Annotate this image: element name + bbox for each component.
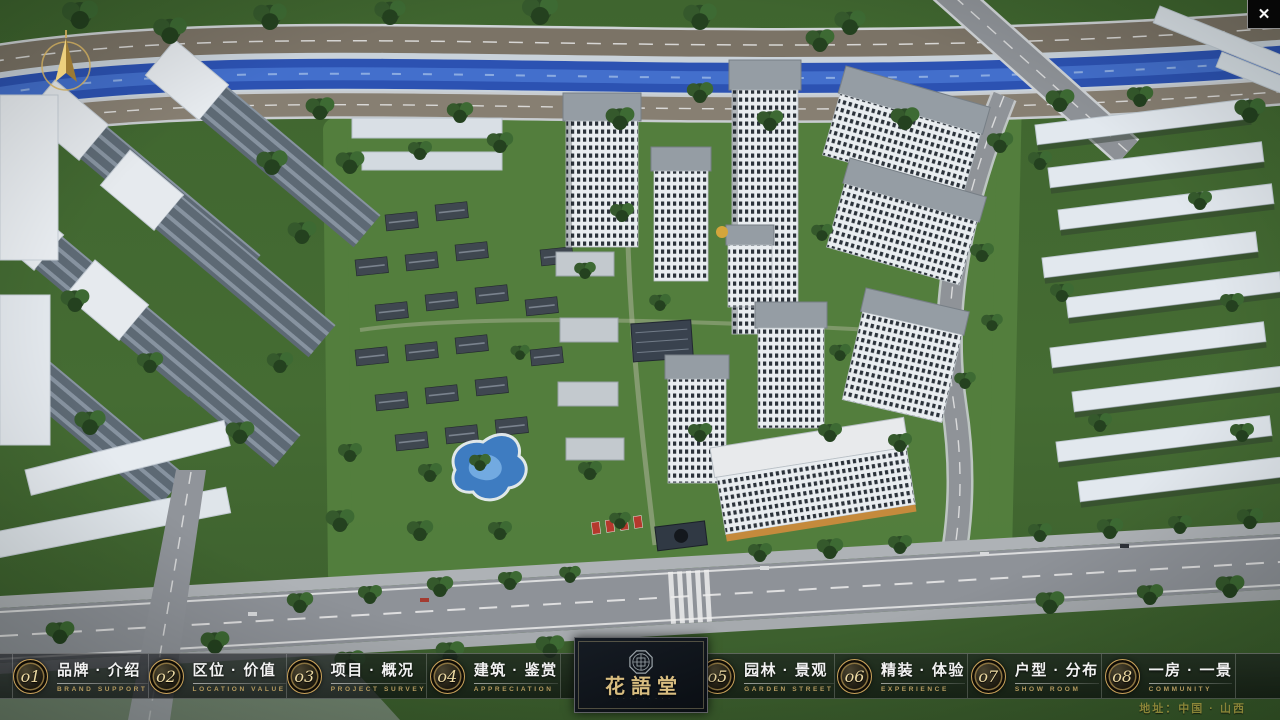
nav-sublabel-4: APPRECIATION	[474, 686, 558, 693]
compass-icon[interactable]	[34, 26, 98, 98]
nav-item-experience[interactable]: o6 精装 · 体验 EXPERIENCE	[835, 654, 969, 698]
app-window: ✕ o1 品牌 · 介绍 BRAND SUPPORT o2 区位 · 价值 LO…	[0, 0, 1280, 720]
nav-badge-4: o4	[430, 659, 465, 694]
close-button[interactable]: ✕	[1247, 0, 1280, 29]
nav-label-6: 精装 · 体验	[881, 659, 965, 680]
nav-divider-3	[331, 683, 427, 684]
nav-item-community-view[interactable]: o8 一房 · 一景 COMMUNITY	[1102, 654, 1236, 698]
nav-divider-7	[1015, 683, 1099, 684]
nav-label-3: 项目 · 概况	[331, 659, 427, 680]
nav-number-2: o2	[156, 667, 176, 686]
nav-number-1: o1	[21, 667, 41, 686]
seal-icon	[628, 649, 654, 675]
nav-number-3: o3	[294, 667, 314, 686]
nav-number-4: o4	[437, 667, 457, 686]
nav-sublabel-1: BRAND SUPPORT	[57, 686, 148, 693]
nav-label-1: 品牌 · 介绍	[57, 659, 148, 680]
nav-badge-6: o6	[837, 659, 872, 694]
close-icon: ✕	[1258, 5, 1271, 23]
brand-logo-frame: 花語堂 · · · · · · · · · ·	[578, 641, 704, 709]
nav-label-2: 区位 · 价值	[193, 659, 286, 680]
nav-item-garden-landscape[interactable]: o5 园林 · 景观 GARDEN STREET	[700, 654, 834, 698]
nav-sublabel-3: PROJECT SURVEY	[331, 686, 427, 693]
nav-badge-1: o1	[13, 659, 48, 694]
nav-label-4: 建筑 · 鉴赏	[474, 659, 558, 680]
nav-badge-3: o3	[287, 659, 322, 694]
nav-divider-2	[193, 683, 286, 684]
nav-sublabel-2: LOCATION VALUE	[193, 686, 286, 693]
nav-bar-spacer-left	[0, 654, 13, 698]
nav-number-6: o6	[845, 667, 865, 686]
nav-divider-5	[744, 683, 833, 684]
nav-sublabel-8: COMMUNITY	[1149, 686, 1233, 693]
nav-sublabel-7: SHOW ROOM	[1015, 686, 1099, 693]
nav-sublabel-6: EXPERIENCE	[881, 686, 965, 693]
nav-divider-6	[881, 683, 965, 684]
nav-label-8: 一房 · 一景	[1149, 659, 1233, 680]
nav-item-location-value[interactable]: o2 区位 · 价值 LOCATION VALUE	[149, 654, 287, 698]
nav-item-project-survey[interactable]: o3 项目 · 概况 PROJECT SURVEY	[287, 654, 428, 698]
vignette	[0, 0, 1280, 720]
nav-number-8: o8	[1112, 667, 1132, 686]
nav-divider-1	[57, 683, 148, 684]
nav-item-brand-intro[interactable]: o1 品牌 · 介绍 BRAND SUPPORT	[13, 654, 149, 698]
nav-item-architecture[interactable]: o4 建筑 · 鉴赏 APPRECIATION	[427, 654, 561, 698]
nav-badge-2: o2	[149, 659, 184, 694]
nav-divider-4	[474, 683, 558, 684]
brand-name: 花語堂	[599, 676, 683, 696]
nav-divider-8	[1149, 683, 1233, 684]
nav-badge-7: o7	[971, 659, 1006, 694]
nav-sublabel-5: GARDEN STREET	[744, 686, 833, 693]
nav-badge-8: o8	[1105, 659, 1140, 694]
aerial-map-viewport[interactable]	[0, 0, 1280, 720]
nav-number-7: o7	[978, 667, 998, 686]
nav-label-7: 户型 · 分布	[1015, 659, 1099, 680]
brand-subtitle: · · · · · · · · · ·	[610, 697, 671, 701]
brand-logo-panel[interactable]: 花語堂 · · · · · · · · · ·	[574, 637, 708, 713]
nav-number-5: o5	[708, 667, 728, 686]
address-label: 地址：中国 · 山西	[1139, 700, 1246, 716]
nav-item-floorplans[interactable]: o7 户型 · 分布 SHOW ROOM	[968, 654, 1102, 698]
nav-bar-spacer-right	[1236, 654, 1280, 698]
nav-label-5: 园林 · 景观	[744, 659, 833, 680]
